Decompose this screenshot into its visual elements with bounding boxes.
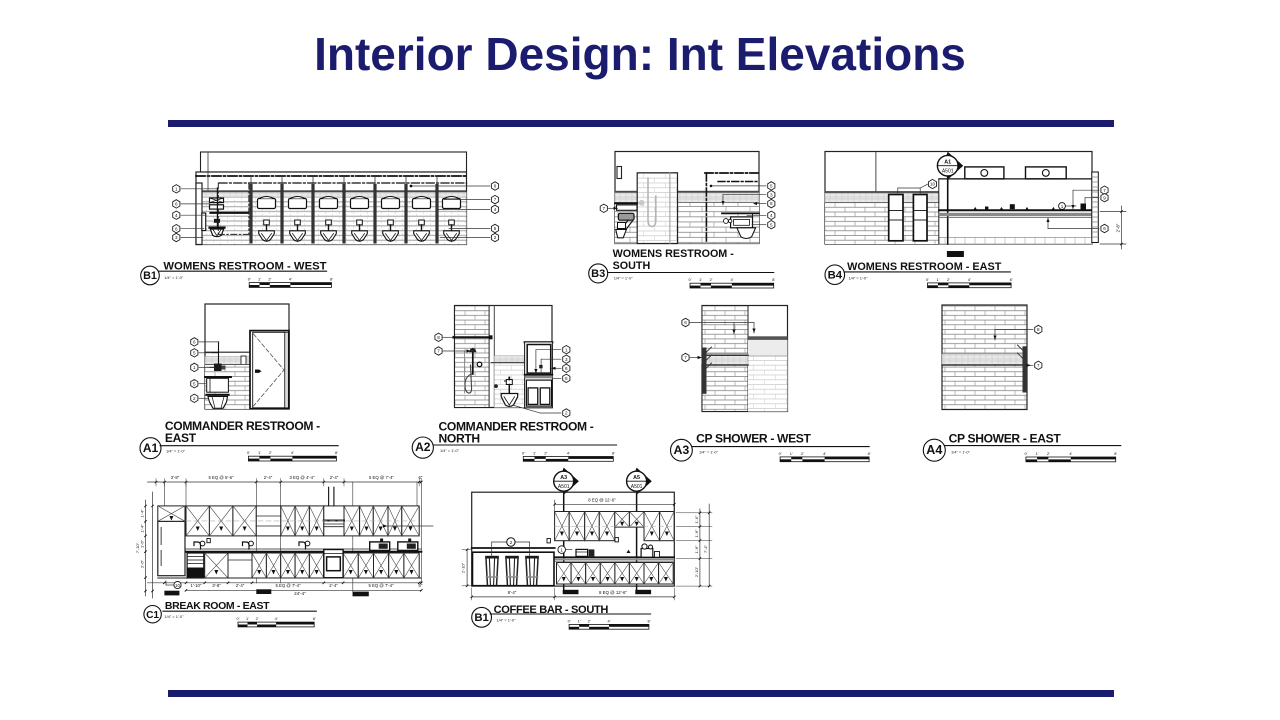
svg-text:4: 4 [494,207,497,212]
svg-text:1/4" = 1'-0": 1/4" = 1'-0" [699,449,719,454]
svg-text:5 EQ @ 7'-4": 5 EQ @ 7'-4" [275,583,301,588]
svg-text:1/4" = 1'-0": 1/4" = 1'-0" [951,449,971,454]
svg-text:5: 5 [770,184,773,189]
svg-text:1/4" = 1'-0": 1/4" = 1'-0" [166,448,186,453]
svg-text:A1: A1 [944,160,951,166]
svg-text:1: 1 [560,547,563,552]
svg-text:1'-6": 1'-6" [694,545,699,554]
svg-text:5 EQ @ 7'-4": 5 EQ @ 7'-4" [369,475,395,480]
svg-text:C1: C1 [146,610,159,621]
svg-text:4': 4' [1069,451,1072,456]
svg-text:7'-10": 7'-10" [135,542,140,553]
svg-text:A501: A501 [631,484,643,490]
svg-text:A3: A3 [560,475,567,481]
svg-text:2: 2 [193,396,196,401]
svg-text:8': 8' [772,277,775,282]
svg-text:4': 4' [567,451,570,456]
svg-text:2'-4": 2'-4" [264,475,273,480]
svg-text:1/4" = 1'-0": 1/4" = 1'-0" [614,275,634,280]
svg-text:2': 2' [1047,451,1050,456]
svg-text:5: 5 [494,226,497,231]
svg-text:3: 3 [770,192,773,197]
svg-text:8': 8' [612,451,615,456]
svg-text:8: 8 [437,335,440,340]
svg-text:5: 5 [193,350,196,355]
svg-text:2: 2 [510,540,513,546]
svg-text:1': 1' [533,451,536,456]
svg-text:4: 4 [175,213,178,218]
svg-text:1: 1 [1061,204,1064,209]
svg-text:B1: B1 [143,270,157,282]
svg-text:B3: B3 [591,268,605,280]
svg-text:6: 6 [175,202,178,207]
svg-text:B1: B1 [474,612,489,624]
svg-text:4': 4' [289,277,292,282]
svg-text:6: 6 [494,184,497,189]
svg-text:0': 0' [522,451,525,456]
svg-text:1/4" = 1'-0": 1/4" = 1'-0" [849,276,869,281]
svg-text:NORTH: NORTH [439,432,480,446]
svg-text:2'-4": 2'-4" [236,583,245,588]
svg-text:1: 1 [175,186,178,191]
svg-text:3'-8": 3'-8" [171,475,180,480]
svg-text:2'-6": 2'-6" [140,559,145,568]
svg-text:7'-4": 7'-4" [703,544,708,553]
svg-text:1': 1' [578,618,581,623]
svg-text:1': 1' [1036,451,1039,456]
svg-text:1': 1' [937,277,940,282]
svg-text:6: 6 [193,340,196,345]
svg-text:8': 8' [647,618,650,623]
svg-text:1': 1' [246,616,249,621]
svg-text:8': 8' [1010,277,1013,282]
svg-text:8': 8' [330,277,333,282]
svg-text:8': 8' [335,450,338,455]
svg-text:7: 7 [1037,363,1040,368]
svg-text:2: 2 [494,235,497,240]
svg-text:SOUTH: SOUTH [613,260,651,272]
svg-text:4: 4 [770,213,773,218]
svg-text:2': 2' [544,451,547,456]
svg-text:8': 8' [313,616,316,621]
svg-text:0': 0' [247,450,250,455]
svg-text:B4: B4 [828,269,843,281]
svg-text:2': 2' [709,277,712,282]
svg-text:6": 6" [419,475,423,480]
svg-text:A501: A501 [558,484,570,490]
svg-text:5: 5 [193,381,196,386]
svg-text:2': 2' [268,277,271,282]
svg-text:A3: A3 [673,443,689,457]
svg-text:2': 2' [801,451,804,456]
svg-text:10: 10 [175,583,180,588]
svg-text:6: 6 [1103,226,1106,231]
svg-text:9: 9 [1103,195,1106,200]
svg-text:1'-6": 1'-6" [694,515,699,524]
svg-text:1'-4": 1'-4" [140,524,145,533]
svg-text:3 EQ @ 4'-4": 3 EQ @ 4'-4" [289,475,315,480]
svg-text:2'-8": 2'-8" [1116,223,1121,232]
svg-text:WOMENS RESTROOM - WEST: WOMENS RESTROOM - WEST [163,260,326,272]
svg-text:1/4" = 1'-0": 1/4" = 1'-0" [165,614,185,619]
svg-text:3: 3 [175,235,178,240]
svg-text:CP SHOWER - WEST: CP SHOWER - WEST [696,432,811,446]
svg-text:1'-10": 1'-10" [191,583,202,588]
svg-text:7: 7 [494,197,497,202]
svg-text:4': 4' [275,616,278,621]
svg-text:8: 8 [1037,327,1040,332]
svg-text:5: 5 [565,376,568,381]
svg-text:8'-4": 8'-4" [508,590,517,595]
svg-text:7: 7 [603,206,606,211]
svg-text:8: 8 [770,201,773,206]
svg-text:5 EQ @ 7'-4": 5 EQ @ 7'-4" [368,583,394,588]
svg-text:2'-10": 2'-10" [461,562,466,573]
svg-text:EAST: EAST [165,431,197,445]
svg-text:1'-6": 1'-6" [694,529,699,538]
svg-text:4': 4' [730,277,733,282]
svg-text:0': 0' [689,277,692,282]
svg-text:A5: A5 [633,475,640,481]
svg-text:1/4" = 1'-0": 1/4" = 1'-0" [440,448,460,453]
svg-text:0': 0' [779,451,782,456]
svg-text:3'-8": 3'-8" [212,583,221,588]
svg-text:A501: A501 [942,168,954,174]
svg-text:1'-6": 1'-6" [140,539,145,548]
svg-text:0': 0' [568,618,571,623]
svg-text:7: 7 [437,349,440,354]
svg-text:7: 7 [684,355,687,360]
svg-text:0': 0' [237,616,240,621]
svg-text:2': 2' [947,277,950,282]
svg-text:10: 10 [930,182,936,187]
svg-text:2': 2' [588,618,591,623]
svg-text:1'-4": 1'-4" [140,509,145,518]
svg-text:1/4" = 1'-0": 1/4" = 1'-0" [497,617,517,622]
svg-text:2': 2' [269,450,272,455]
svg-text:6: 6 [565,366,568,371]
svg-text:24'-4": 24'-4" [294,591,306,596]
svg-text:A4: A4 [926,443,942,457]
svg-text:0': 0' [248,277,251,282]
svg-text:1/4" = 1'-0": 1/4" = 1'-0" [164,275,184,280]
svg-text:4': 4' [968,277,971,282]
svg-text:A2: A2 [415,440,431,454]
svg-text:2: 2 [565,411,568,416]
svg-text:2'-4": 2'-4" [330,475,339,480]
svg-text:3: 3 [565,357,568,362]
svg-text:1': 1' [258,277,261,282]
svg-text:4': 4' [291,450,294,455]
svg-text:6: 6 [175,226,178,231]
svg-text:1: 1 [565,347,568,352]
svg-text:8': 8' [1114,451,1117,456]
svg-text:0': 0' [1024,451,1027,456]
svg-text:6: 6 [684,320,687,325]
svg-text:5 EQ @ 5'-6": 5 EQ @ 5'-6" [208,475,234,480]
svg-text:8 EQ @ 12'-6": 8 EQ @ 12'-6" [588,497,616,502]
svg-text:1: 1 [193,365,196,370]
svg-text:4': 4' [823,451,826,456]
svg-text:1': 1' [258,450,261,455]
svg-text:7: 7 [1103,188,1106,193]
svg-text:1': 1' [790,451,793,456]
svg-text:5: 5 [770,222,773,227]
svg-text:A1: A1 [143,441,159,455]
svg-text:1': 1' [699,277,702,282]
svg-text:CP SHOWER - EAST: CP SHOWER - EAST [949,432,1062,446]
svg-text:6": 6" [419,583,423,588]
svg-text:2': 2' [256,616,259,621]
svg-text:8 EQ @ 12'-6": 8 EQ @ 12'-6" [599,590,628,595]
svg-text:2'-10": 2'-10" [694,566,699,577]
svg-text:2'-4": 2'-4" [329,583,338,588]
svg-text:BREAK ROOM - EAST: BREAK ROOM - EAST [165,600,270,612]
svg-text:0': 0' [926,277,929,282]
svg-text:4': 4' [608,618,611,623]
svg-text:WOMENS RESTROOM -: WOMENS RESTROOM - [613,248,735,260]
svg-text:8': 8' [868,451,871,456]
svg-text:WOMENS RESTROOM - EAST: WOMENS RESTROOM - EAST [847,261,1002,273]
